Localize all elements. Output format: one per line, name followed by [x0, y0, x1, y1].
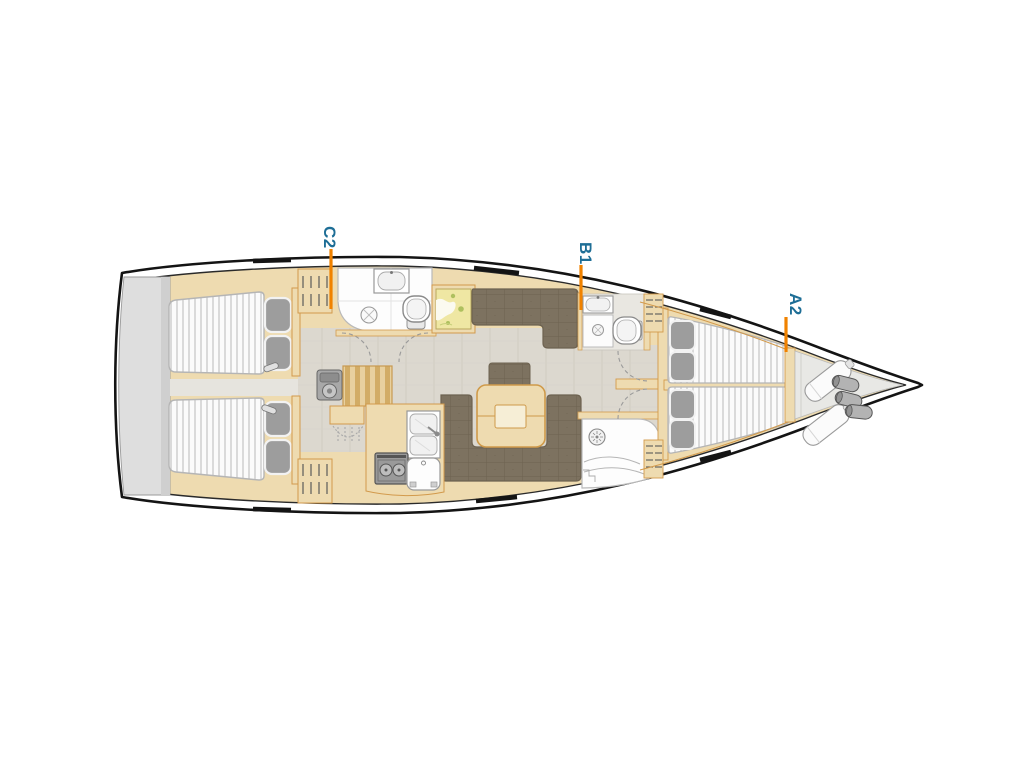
head-bulkhead — [578, 412, 666, 419]
forward-head-wc — [578, 293, 650, 350]
sink-icon — [583, 296, 613, 313]
toilet-icon — [613, 317, 642, 344]
transom-platform — [119, 277, 170, 495]
shower-drain-icon — [361, 307, 377, 323]
shower-head-icon — [589, 429, 605, 445]
shower-drain-icon — [593, 325, 604, 336]
cabin-label-text[interactable]: A2 — [786, 293, 805, 316]
pillow-icon — [670, 352, 695, 381]
bed-icon — [169, 292, 264, 374]
forepeak-bulkhead — [785, 348, 795, 422]
engine-icon — [317, 370, 342, 400]
double-sink-icon — [407, 411, 440, 458]
nav-station — [432, 285, 475, 333]
stove-icon — [375, 453, 408, 484]
companionway-stairs-icon — [343, 366, 392, 406]
wardrobe-forward-top — [644, 294, 663, 332]
door-post — [616, 379, 658, 389]
sink-icon — [374, 269, 409, 293]
salon-table — [477, 385, 545, 447]
bed-icon — [169, 398, 264, 480]
fridge-icon — [407, 458, 440, 490]
fender-icon — [845, 404, 873, 420]
wardrobe-forward-bottom — [644, 440, 663, 478]
galley — [366, 404, 444, 496]
pillow-icon — [670, 420, 695, 449]
cabin-label-text[interactable]: B1 — [576, 242, 595, 265]
companionway-cabinet — [330, 406, 364, 424]
aft-head — [336, 268, 436, 336]
wardrobe-aft-port — [298, 269, 332, 313]
yacht-deck-plan: C2 B1 A2 — [0, 0, 1024, 768]
cabin-label-text[interactable]: C2 — [320, 226, 339, 249]
pillow-icon — [670, 390, 695, 419]
pillow-icon — [265, 440, 291, 474]
head-bulkhead — [336, 330, 436, 336]
shower-tray — [583, 315, 613, 347]
wardrobe-aft-starboard — [298, 459, 332, 503]
page: C2 B1 A2 — [0, 0, 1024, 768]
pillow-icon — [265, 298, 291, 332]
pillow-icon — [670, 321, 695, 350]
chart-table-icon — [436, 289, 471, 329]
